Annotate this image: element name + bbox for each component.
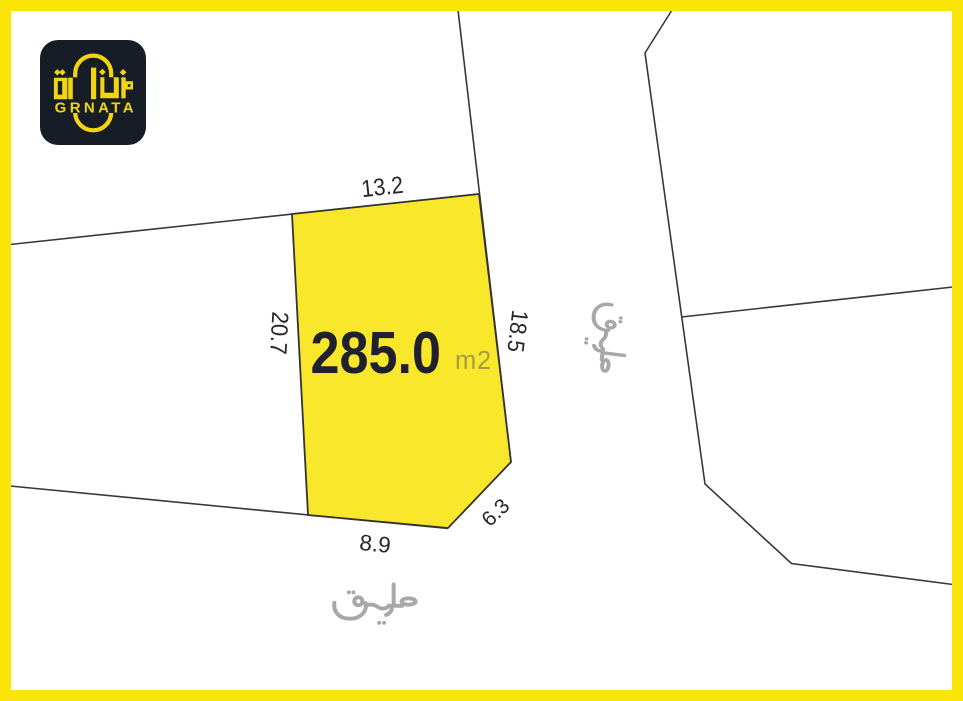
svg-text:m2: m2 <box>455 347 492 375</box>
svg-text:GRNATA: GRNATA <box>55 100 137 117</box>
svg-text:285.0: 285.0 <box>311 320 442 386</box>
svg-text:20.7: 20.7 <box>265 311 293 355</box>
svg-text:13.2: 13.2 <box>360 172 405 203</box>
svg-text:18.5: 18.5 <box>502 309 533 354</box>
svg-text:8.9: 8.9 <box>358 530 392 558</box>
